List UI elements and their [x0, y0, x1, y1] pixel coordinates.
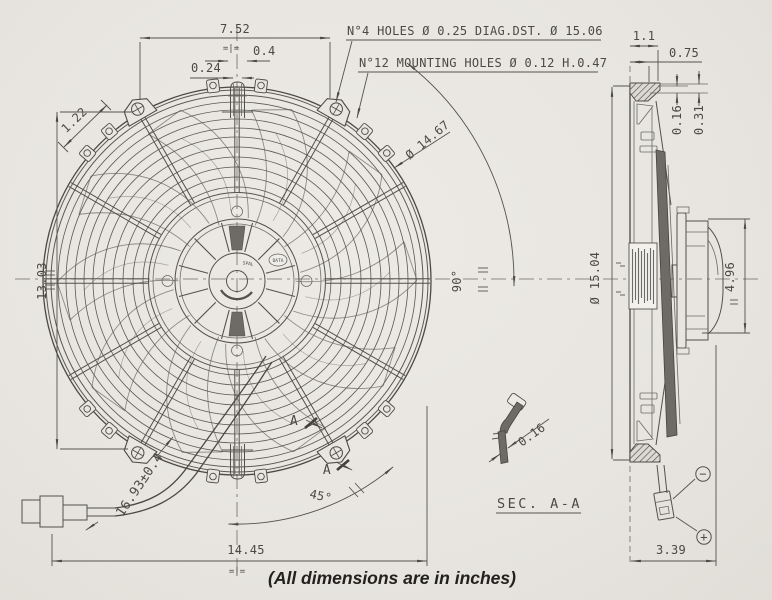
hub-badge-text: DATA [273, 258, 284, 264]
front-dimensions: 7.52 =|= 0.4 0.24 1.22 13.03 14.45 =|= Ø… [35, 22, 514, 577]
side-view: − + [629, 83, 723, 544]
dim-step-1: 0.16 [670, 105, 684, 135]
note-holes4: N°4 HOLES Ø 0.25 DIAG.DST. Ø 15.06 [347, 24, 603, 38]
bottom-stem-tab [222, 444, 253, 479]
section-letter-top: A [290, 414, 298, 429]
dim-width: 14.45 [227, 543, 265, 557]
flange-top-section [630, 83, 660, 101]
dim-motor-dia: 4.96 [723, 262, 737, 292]
motor-side [672, 207, 723, 354]
dim-step-2: 0.31 [692, 105, 706, 135]
connector-front [22, 496, 115, 527]
angle-90: 90° [450, 270, 464, 293]
datum-bottom: =|= [229, 567, 246, 577]
dim-height: 13.03 [35, 262, 49, 300]
front-view: DATA SPAL A A [22, 79, 431, 527]
dim-clip-thickness: 0.16 [515, 420, 548, 449]
datum-top: =|= [223, 44, 240, 54]
dim-slot: 1.22 [59, 105, 90, 136]
flange-bottom-section [630, 444, 660, 462]
hub-wedge-top [229, 226, 245, 250]
polarity-plus: + [700, 530, 708, 544]
dim-overall-dia: Ø 15.04 [588, 252, 602, 305]
clip-stem [498, 431, 508, 464]
dim-blade-dia: Ø 14.67 [403, 118, 452, 163]
section-label: SEC. A-A [497, 496, 582, 512]
section-letter-bottom: A [323, 463, 331, 478]
fan-technical-drawing: DATA SPAL A A [0, 0, 772, 600]
section-detail: 0.16 SEC. A-A [489, 392, 582, 513]
hub-wedge-bottom [229, 312, 245, 336]
dim-top-width: 7.52 [220, 22, 250, 36]
angle-45: 45° [308, 487, 333, 505]
dim-tab-width: 0.4 [253, 44, 276, 58]
technical-drawing-page: DATA SPAL A A [0, 0, 772, 600]
polarity-minus: − [699, 467, 707, 481]
dim-tab-offset: 0.24 [191, 61, 221, 75]
side-label-sticker [629, 243, 657, 309]
dim-depth: 3.39 [656, 543, 686, 557]
note-holes12: N°12 MOUNTING HOLES Ø 0.12 H.0.47 [359, 56, 607, 70]
footer-note: (All dimensions are in inches) [268, 568, 516, 588]
dim-depth-front: 0.75 [669, 46, 699, 60]
dim-flange: 1.1 [633, 29, 656, 43]
clip-arm [500, 402, 523, 433]
hub-brand-text: SPAL [242, 260, 254, 267]
side-wire-connector: − + [654, 465, 712, 544]
drawing-notes: N°4 HOLES Ø 0.25 DIAG.DST. Ø 15.06 N°12 … [336, 24, 607, 118]
